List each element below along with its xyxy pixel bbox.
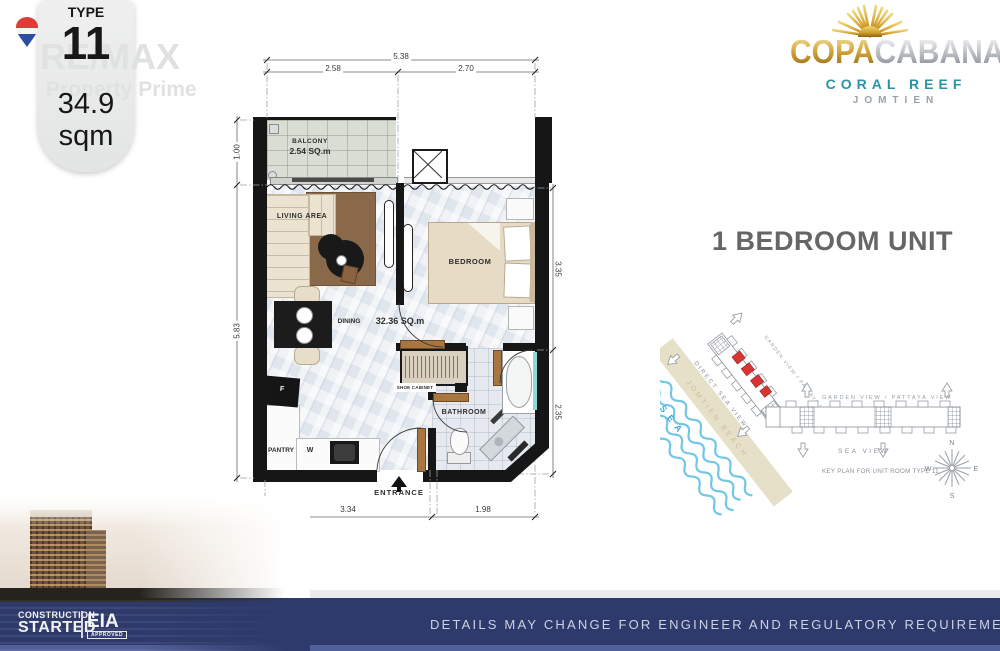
bathtub-basin [506,356,532,408]
badge-area-unit: sqm [38,120,134,153]
wall-left [253,117,267,478]
footer-disclaimer: DETAILS MAY CHANGE FOR ENGINEER AND REGU… [430,617,995,632]
balcony-drain-icon [269,124,279,134]
logo-copacabana: COPACABANA [790,34,1000,72]
dim-right-bottom: 2.35 [554,402,563,422]
construction-line2: STARTED [18,619,96,637]
compass-e: E [973,464,978,473]
eia-label: EIA [87,611,119,633]
ac-x-mark [414,151,442,178]
bathtub [502,350,537,414]
logo-copa: COPA [790,34,874,71]
nightstand [506,198,534,220]
photo-fade-top [0,496,310,598]
location-pin-icon [14,16,40,48]
bathroom-door-leaf [433,393,469,402]
compass-w: W [924,464,932,473]
horizontal-wing [766,401,960,433]
balcony-area-label: 2.54 SQ.m [289,146,330,156]
keyplan-caption: KEY PLAN FOR UNIT ROOM TYPE 11 [822,468,939,475]
wall-bedroom-south-right [503,343,535,351]
wall-bottom-right [423,470,511,482]
unit-title: 1 BEDROOM UNIT [712,226,953,257]
fridge-label: F [280,386,285,393]
dim-top-total: 5.38 [391,52,411,61]
ac-unit [412,149,448,184]
sofa [266,194,310,298]
core-3 [800,407,814,427]
dim-top-left: 2.58 [323,64,343,73]
cooktop [330,441,359,464]
washer-label: W [307,447,314,454]
pillow-2 [503,263,531,299]
entrance-label: ENTRANCE [374,488,424,497]
compass-s: S [949,491,954,500]
sea-view-label: SEA VIEW [838,448,889,455]
shoe-cabinet-label: SHOE CABINET [397,385,433,390]
keyplan: JOMTIEN BEACH SEA DIRECT SEA VIEW [660,295,1000,525]
wall-right [535,183,549,448]
bathtub-door-leaf [493,350,502,386]
balcony-slider-track [292,178,374,182]
bedroom-label: BEDROOM [449,257,492,266]
core-5 [948,407,960,427]
dining-label: DINING [338,318,361,325]
plate-1 [296,307,313,324]
dining-chair-bottom [294,346,320,365]
bedroom-bench [508,306,534,330]
wall-shoe-post [455,383,467,392]
wall-bottom-left [253,470,377,482]
wall-bath-divider [428,428,436,472]
logo-cabana: CABANA [874,34,1000,71]
dim-bottom-left: 3.34 [338,505,358,514]
pantry-label: PANTRY [268,447,294,454]
bathroom-window [533,352,537,410]
logo-jomtien: JOMTIEN [790,95,1000,106]
bathroom-label: BATHROOM [442,409,487,416]
vanity-sink [492,435,505,448]
bedroom-door-leaf [400,340,445,349]
sliding-door-leaf-1 [384,200,394,268]
eia-approved-label: APPROVED [87,631,127,639]
wall-column-topright [535,117,552,183]
balcony-label: BALCONY [292,138,328,145]
construction-divider [81,611,83,638]
dim-left-top: 1.00 [233,142,242,162]
sunburst-icon [828,0,912,38]
core-4 [875,407,891,427]
entrance-arrow-icon [391,476,407,487]
toilet-bowl [450,428,469,455]
pillow-1 [503,225,532,261]
badge-type-number: 11 [38,16,134,70]
flyer-page: RE/MAX Property Prime TYPE 11 34.9 sqm C… [0,0,1000,651]
garden-view-horizontal-label: GARDEN VIEW / PATTAYA VIEW [822,395,952,401]
balcony-floor [267,120,396,180]
badge-area-value: 34.9 [38,88,134,121]
interior-area-label: 32.36 SQ.m [376,316,425,326]
cooktop-surface [334,444,355,461]
entrance-door-leaf [417,428,426,472]
logo-coral-reef: CORAL REEF [790,76,1000,92]
plate-2 [296,327,313,344]
wall-balcony-top [267,117,396,120]
sliding-door-leaf-2 [403,224,413,292]
dim-left-main: 5.83 [233,321,242,341]
wardrobe-hangers [405,356,459,378]
living-area-label: LIVING AREA [277,213,327,220]
dim-top-right: 2.70 [456,64,476,73]
compass-n: N [949,438,954,447]
wardrobe [400,346,468,386]
dim-bottom-right: 1.98 [473,505,493,514]
dim-right-top: 3.35 [554,259,563,279]
